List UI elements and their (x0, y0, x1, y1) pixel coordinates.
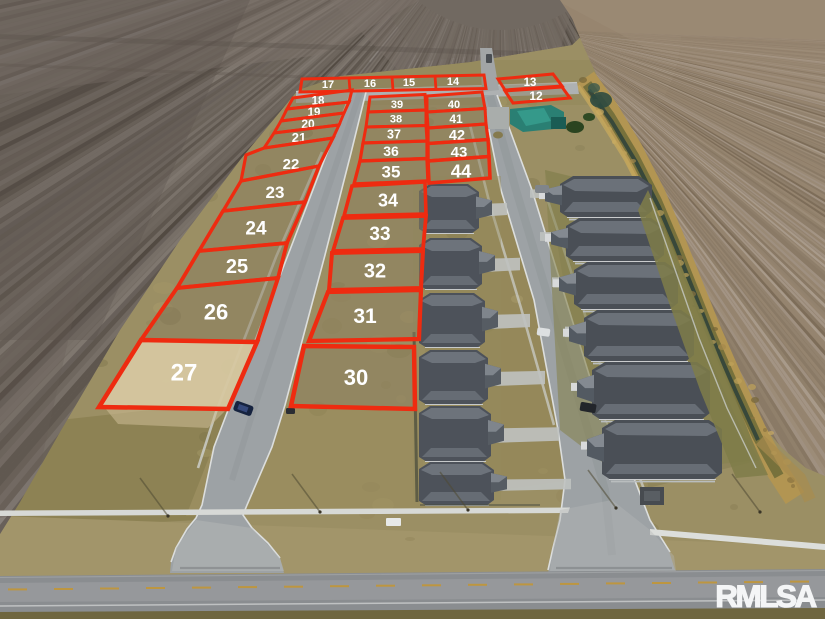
svg-text:36: 36 (383, 143, 399, 159)
svg-text:35: 35 (382, 162, 401, 181)
svg-text:24: 24 (245, 219, 267, 240)
svg-text:30: 30 (344, 365, 368, 390)
svg-text:32: 32 (364, 261, 386, 283)
svg-text:38: 38 (390, 113, 402, 125)
svg-text:23: 23 (266, 183, 285, 202)
svg-text:17: 17 (322, 79, 334, 91)
svg-text:39: 39 (391, 99, 403, 111)
svg-text:RMLSA: RMLSA (715, 578, 816, 614)
svg-text:41: 41 (449, 112, 463, 126)
svg-text:14: 14 (447, 76, 460, 88)
svg-text:44: 44 (451, 161, 472, 182)
svg-text:31: 31 (353, 305, 377, 328)
svg-text:34: 34 (378, 190, 398, 210)
svg-text:16: 16 (364, 78, 376, 90)
svg-text:25: 25 (226, 256, 248, 278)
svg-text:33: 33 (369, 224, 390, 245)
svg-text:15: 15 (403, 77, 415, 89)
svg-text:26: 26 (204, 300, 228, 325)
svg-text:13: 13 (524, 77, 537, 89)
svg-text:12: 12 (529, 89, 543, 103)
svg-text:27: 27 (171, 359, 198, 386)
svg-text:37: 37 (387, 127, 401, 141)
